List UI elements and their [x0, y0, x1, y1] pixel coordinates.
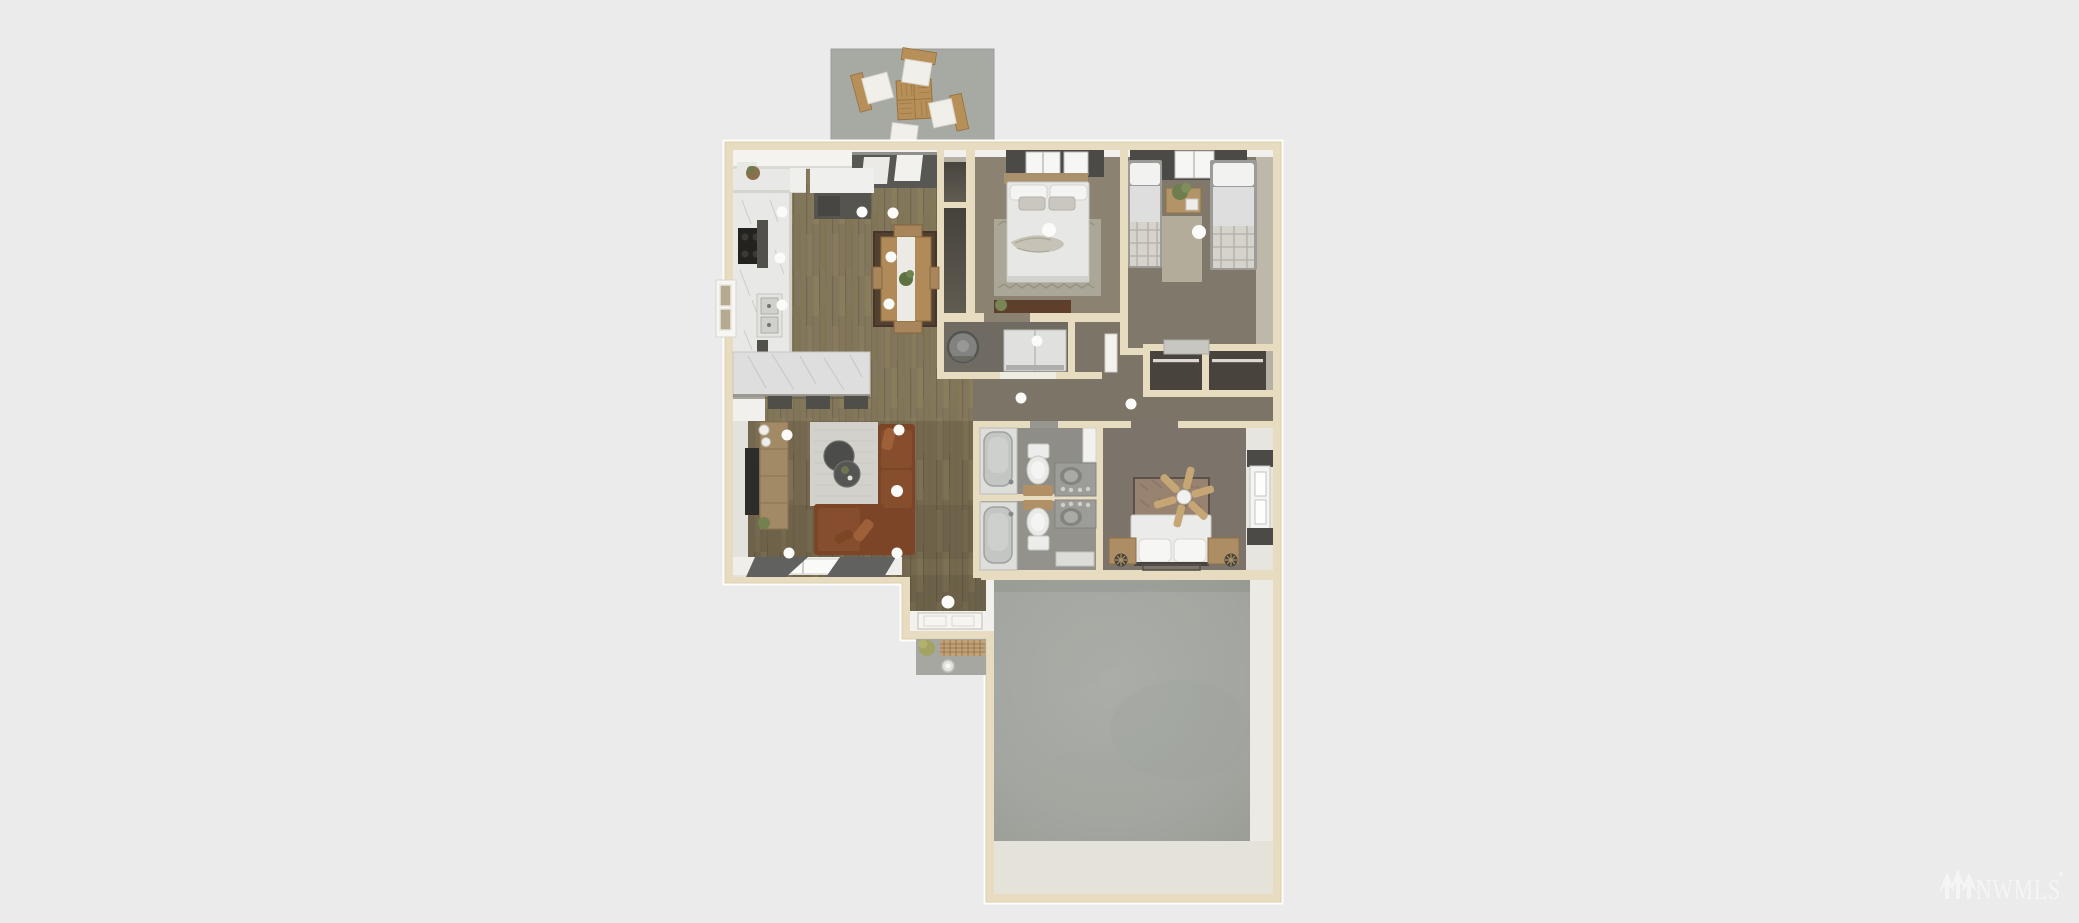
svg-text:NWMLS: NWMLS — [1976, 876, 2061, 906]
